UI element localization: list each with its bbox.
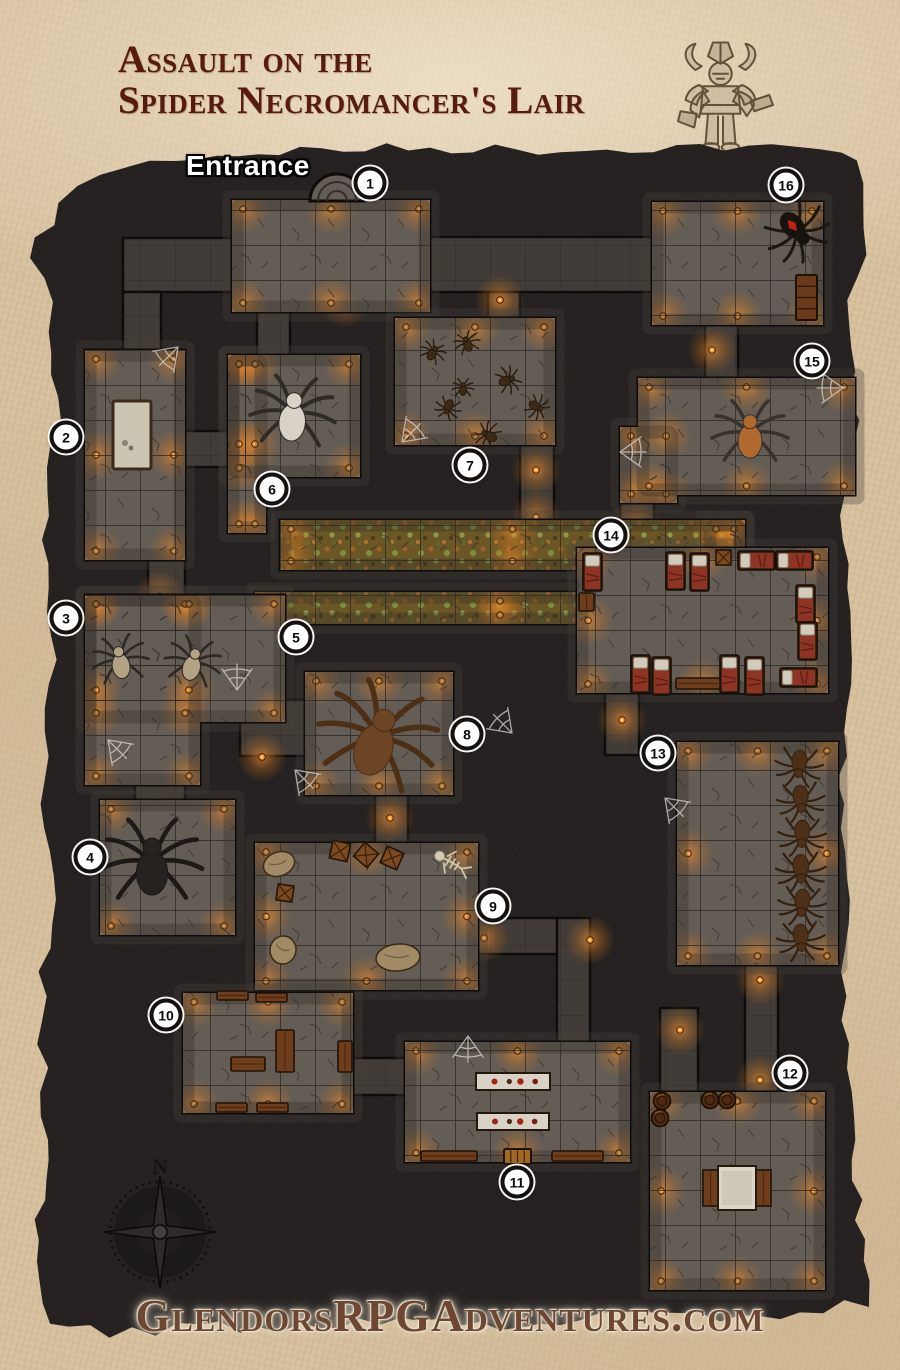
feast-table-icon	[477, 1113, 549, 1130]
room-marker-15: 15	[796, 345, 829, 378]
corridor-floor	[430, 237, 652, 292]
bed-icon	[796, 585, 815, 623]
table-icon	[579, 593, 594, 611]
bed-icon	[652, 657, 671, 695]
room-marker-10: 10	[150, 999, 183, 1032]
table-icon	[216, 1103, 247, 1112]
bed-icon	[738, 551, 775, 570]
room-marker-11: 11	[501, 1166, 534, 1199]
room-marker-1: 1	[354, 167, 387, 200]
room-marker-2: 2	[50, 421, 83, 454]
entrance-label: Entrance	[186, 150, 310, 182]
altar-icon	[703, 1166, 771, 1210]
room-marker-13: 13	[642, 737, 675, 770]
dungeon-map-page: Assault on the Spider Necromancer's Lair	[0, 0, 900, 1370]
bench-icon	[676, 678, 720, 689]
bench-icon	[421, 1151, 477, 1161]
table-icon	[276, 1030, 294, 1072]
table-icon	[338, 1041, 352, 1072]
bed-icon	[720, 655, 739, 693]
room-marker-9: 9	[477, 890, 510, 923]
compass-hub	[153, 1225, 167, 1239]
bed-icon	[745, 657, 764, 695]
room-marker-8: 8	[451, 718, 484, 751]
bed-icon	[583, 553, 602, 591]
table-icon	[231, 1057, 265, 1071]
room-marker-3: 3	[50, 602, 83, 635]
pool-icon	[113, 401, 151, 469]
room-7-floor	[380, 301, 570, 462]
dungeon-map: N	[0, 0, 900, 1370]
corridor-floor	[123, 238, 232, 292]
door-icon	[504, 1149, 531, 1164]
room-marker-5: 5	[280, 621, 313, 654]
room-13-floor	[662, 725, 853, 982]
room-marker-14: 14	[595, 519, 628, 552]
barrel-icon	[719, 1092, 736, 1109]
bed-icon	[780, 668, 817, 687]
bed-icon	[666, 552, 685, 590]
room-marker-6: 6	[256, 473, 289, 506]
table-icon	[256, 993, 287, 1002]
crate-icon	[329, 840, 350, 861]
bed-icon	[798, 622, 817, 660]
room-marker-16: 16	[770, 169, 803, 202]
compass-north-label: N	[152, 1154, 168, 1179]
bench-icon	[552, 1151, 603, 1161]
room-marker-12: 12	[774, 1057, 807, 1090]
crate-icon	[716, 550, 731, 565]
website-watermark: GlendorsRPGAdventures.com	[0, 1290, 900, 1342]
barrel-icon	[702, 1092, 719, 1109]
bed-icon	[631, 655, 650, 693]
table-icon	[257, 1103, 288, 1112]
bed-icon	[776, 551, 813, 570]
door-icon	[796, 275, 817, 320]
barrel-icon	[654, 1093, 671, 1110]
bed-icon	[690, 553, 709, 591]
room-marker-4: 4	[74, 841, 107, 874]
crate-icon	[276, 884, 294, 902]
room-marker-7: 7	[454, 449, 487, 482]
room-1-floor	[217, 183, 445, 329]
feast-table-icon	[476, 1073, 550, 1090]
table-icon	[217, 991, 248, 1000]
barrel-icon	[652, 1110, 669, 1127]
